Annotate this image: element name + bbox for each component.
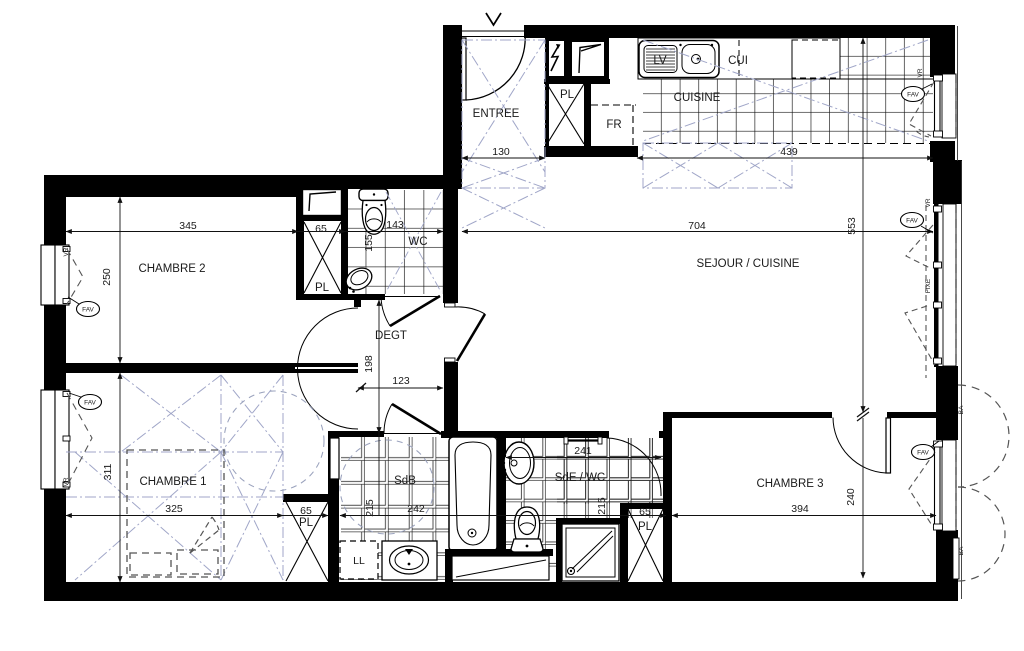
- svg-text:704: 704: [688, 220, 706, 232]
- svg-text:BA: BA: [958, 546, 965, 555]
- svg-text:WC: WC: [408, 236, 427, 248]
- svg-text:CHAMBRE 3: CHAMBRE 3: [756, 478, 823, 490]
- svg-text:65: 65: [300, 505, 312, 517]
- svg-text:ENTREE: ENTREE: [473, 108, 520, 120]
- svg-text:CUI: CUI: [728, 55, 748, 67]
- svg-text:BA: BA: [958, 405, 965, 414]
- svg-text:FAV: FAV: [907, 92, 919, 99]
- svg-text:215: 215: [596, 497, 608, 515]
- svg-text:VR: VR: [917, 68, 924, 77]
- svg-text:VR: VR: [63, 477, 70, 486]
- svg-text:325: 325: [165, 503, 183, 515]
- svg-text:130: 130: [492, 146, 510, 158]
- svg-text:LL: LL: [353, 555, 365, 567]
- svg-text:FAV: FAV: [917, 450, 929, 457]
- svg-text:SdB: SdB: [394, 475, 416, 487]
- svg-text:CUISINE: CUISINE: [674, 92, 721, 104]
- svg-text:SdE / WC: SdE / WC: [555, 472, 605, 484]
- svg-text:PL: PL: [638, 521, 653, 533]
- svg-text:FAV: FAV: [906, 218, 918, 225]
- svg-text:FAV: FAV: [84, 400, 96, 407]
- svg-text:LV: LV: [653, 55, 667, 67]
- svg-text:143: 143: [386, 219, 404, 231]
- svg-text:PL: PL: [560, 89, 575, 101]
- svg-text:198: 198: [363, 355, 375, 373]
- svg-text:311: 311: [102, 463, 114, 480]
- svg-text:PL: PL: [299, 517, 314, 529]
- svg-text:CHAMBRE 2: CHAMBRE 2: [138, 263, 205, 275]
- svg-text:241: 241: [574, 445, 592, 457]
- svg-text:250: 250: [101, 268, 113, 286]
- svg-text:VR: VR: [63, 247, 70, 256]
- svg-text:PL: PL: [315, 282, 330, 294]
- svg-text:240: 240: [845, 488, 857, 506]
- svg-text:FAV: FAV: [82, 307, 94, 314]
- svg-text:CHAMBRE 1: CHAMBRE 1: [139, 476, 206, 488]
- svg-text:439: 439: [780, 146, 798, 158]
- svg-text:65: 65: [315, 223, 327, 235]
- svg-text:215: 215: [364, 499, 376, 517]
- svg-text:FIXE: FIXE: [925, 278, 932, 293]
- svg-text:394: 394: [791, 503, 809, 515]
- svg-text:155: 155: [363, 234, 375, 252]
- svg-text:SEJOUR / CUISINE: SEJOUR / CUISINE: [697, 258, 800, 270]
- svg-text:FR: FR: [606, 119, 621, 131]
- svg-text:553: 553: [846, 217, 858, 235]
- svg-text:VR: VR: [925, 198, 932, 207]
- svg-text:DEGT: DEGT: [375, 330, 407, 342]
- svg-text:345: 345: [179, 220, 197, 232]
- svg-text:242: 242: [407, 503, 425, 515]
- svg-text:65: 65: [639, 506, 651, 518]
- svg-text:123: 123: [392, 375, 410, 387]
